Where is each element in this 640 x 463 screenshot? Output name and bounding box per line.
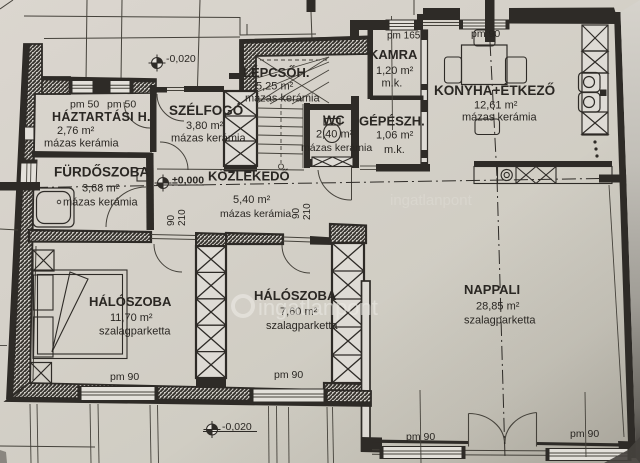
svg-text:28,85 m²: 28,85 m² [476, 301, 520, 313]
svg-text:90: 90 [291, 207, 302, 219]
svg-text:12,61 m²: 12,61 m² [474, 100, 518, 112]
svg-text:KONYHA+ÉTKEZŐ: KONYHA+ÉTKEZŐ [434, 83, 555, 98]
svg-text:FÜRDŐSZOBA: FÜRDŐSZOBA [54, 165, 149, 180]
svg-text:2,76 m²: 2,76 m² [57, 125, 95, 137]
svg-text:NAPPALI: NAPPALI [464, 282, 520, 297]
svg-text:HÁZTARTÁSI H.: HÁZTARTÁSI H. [52, 109, 151, 124]
svg-text:-0,020: -0,020 [166, 53, 196, 65]
svg-text:1,20 m²: 1,20 m² [376, 65, 414, 77]
svg-text:WC: WC [323, 113, 345, 128]
svg-text:pm 165: pm 165 [387, 31, 421, 42]
svg-text:mázas kerámia: mázas kerámia [44, 138, 119, 150]
svg-text:GÉPÉSZH.: GÉPÉSZH. [359, 114, 425, 129]
svg-text:210: 210 [177, 209, 188, 226]
svg-text:m.k.: m.k. [384, 144, 405, 156]
svg-text:HÁLÓSZOBA: HÁLÓSZOBA [89, 294, 172, 309]
svg-text:5,25 m²: 5,25 m² [256, 81, 294, 93]
svg-text:pm 90: pm 90 [110, 371, 139, 383]
svg-text:LÉPCSŐH.: LÉPCSŐH. [243, 65, 309, 80]
svg-text:pm 50: pm 50 [107, 99, 136, 111]
svg-text:210: 210 [302, 203, 313, 220]
svg-text:ingatlanpont: ingatlanpont [258, 295, 378, 320]
svg-text:pm 90: pm 90 [570, 428, 599, 440]
svg-text:2,40 m²: 2,40 m² [316, 129, 354, 141]
svg-text:5,40 m²: 5,40 m² [233, 194, 271, 206]
svg-text:mázas kerámia: mázas kerámia [245, 93, 320, 105]
svg-text:szalagparketta: szalagparketta [99, 326, 171, 338]
svg-text:mázas kerámia: mázas kerámia [171, 133, 246, 145]
svg-text:3,80 m²: 3,80 m² [186, 120, 224, 132]
svg-text:mázas kerámia: mázas kerámia [462, 112, 537, 124]
svg-text:KAMRA: KAMRA [369, 47, 418, 62]
svg-text:90: 90 [166, 214, 177, 226]
svg-text:mázas kerámia: mázas kerámia [301, 142, 372, 154]
svg-text:SZÉLFOGÓ: SZÉLFOGÓ [169, 103, 243, 118]
svg-text:szalagparketta: szalagparketta [266, 320, 338, 332]
svg-text:mázas kerámia: mázas kerámia [220, 208, 291, 220]
svg-text:11,70 m²: 11,70 m² [110, 312, 153, 324]
svg-text:pm 90: pm 90 [406, 431, 435, 443]
svg-text:szalagparketta: szalagparketta [464, 315, 536, 327]
svg-text:pm 90: pm 90 [274, 369, 303, 381]
svg-text:KÖZLEKEDŐ: KÖZLEKEDŐ [208, 169, 290, 184]
svg-text:±0,000: ±0,000 [172, 175, 204, 187]
svg-text:-0,020: -0,020 [222, 421, 252, 433]
svg-text:mázas kerámia: mázas kerámia [63, 197, 138, 209]
svg-text:1,06 m²: 1,06 m² [376, 130, 414, 142]
svg-text:ingatlanpont: ingatlanpont [390, 192, 473, 209]
svg-text:pm 50: pm 50 [70, 99, 99, 111]
svg-text:m.k.: m.k. [382, 78, 403, 90]
svg-text:3,68 m²: 3,68 m² [82, 183, 120, 195]
svg-text:pm 90: pm 90 [471, 28, 500, 40]
